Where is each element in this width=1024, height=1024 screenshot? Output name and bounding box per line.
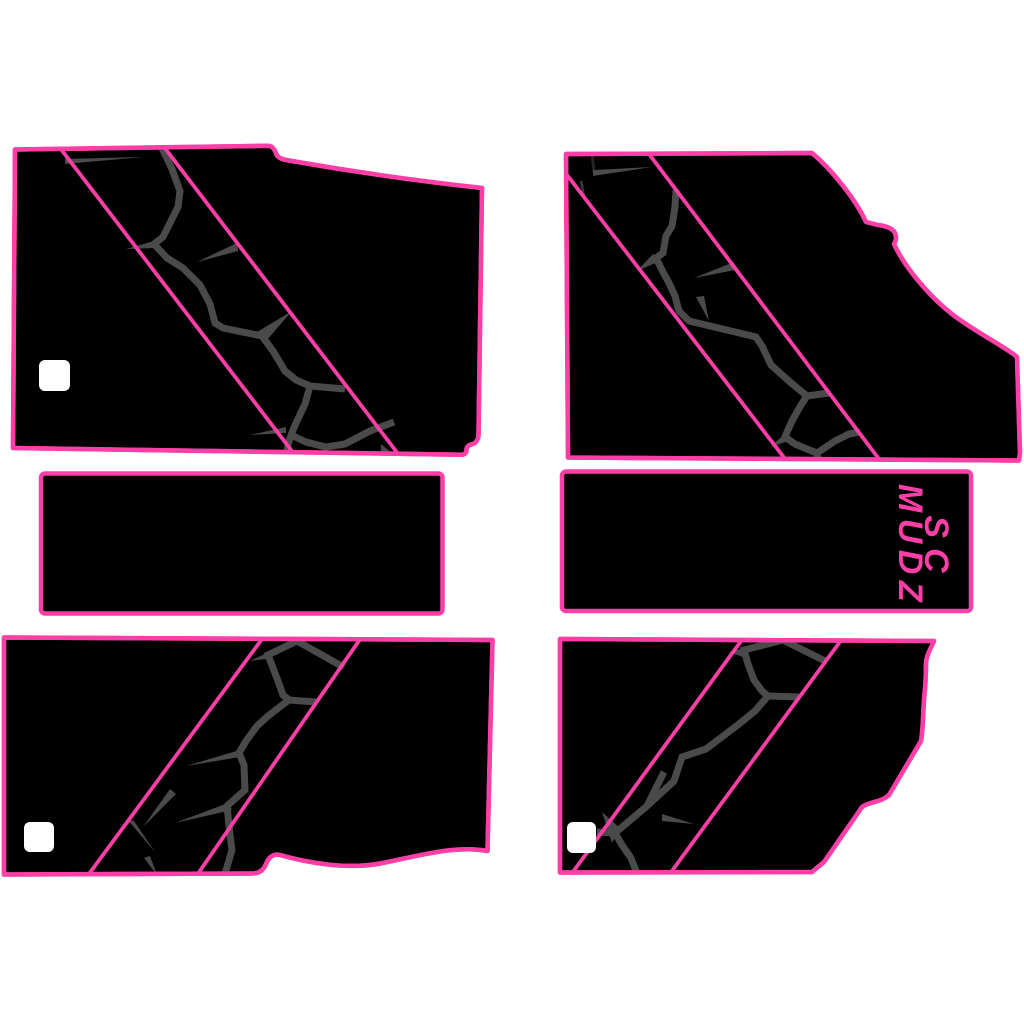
svg-text:MUDZ: MUDZ <box>891 484 929 608</box>
